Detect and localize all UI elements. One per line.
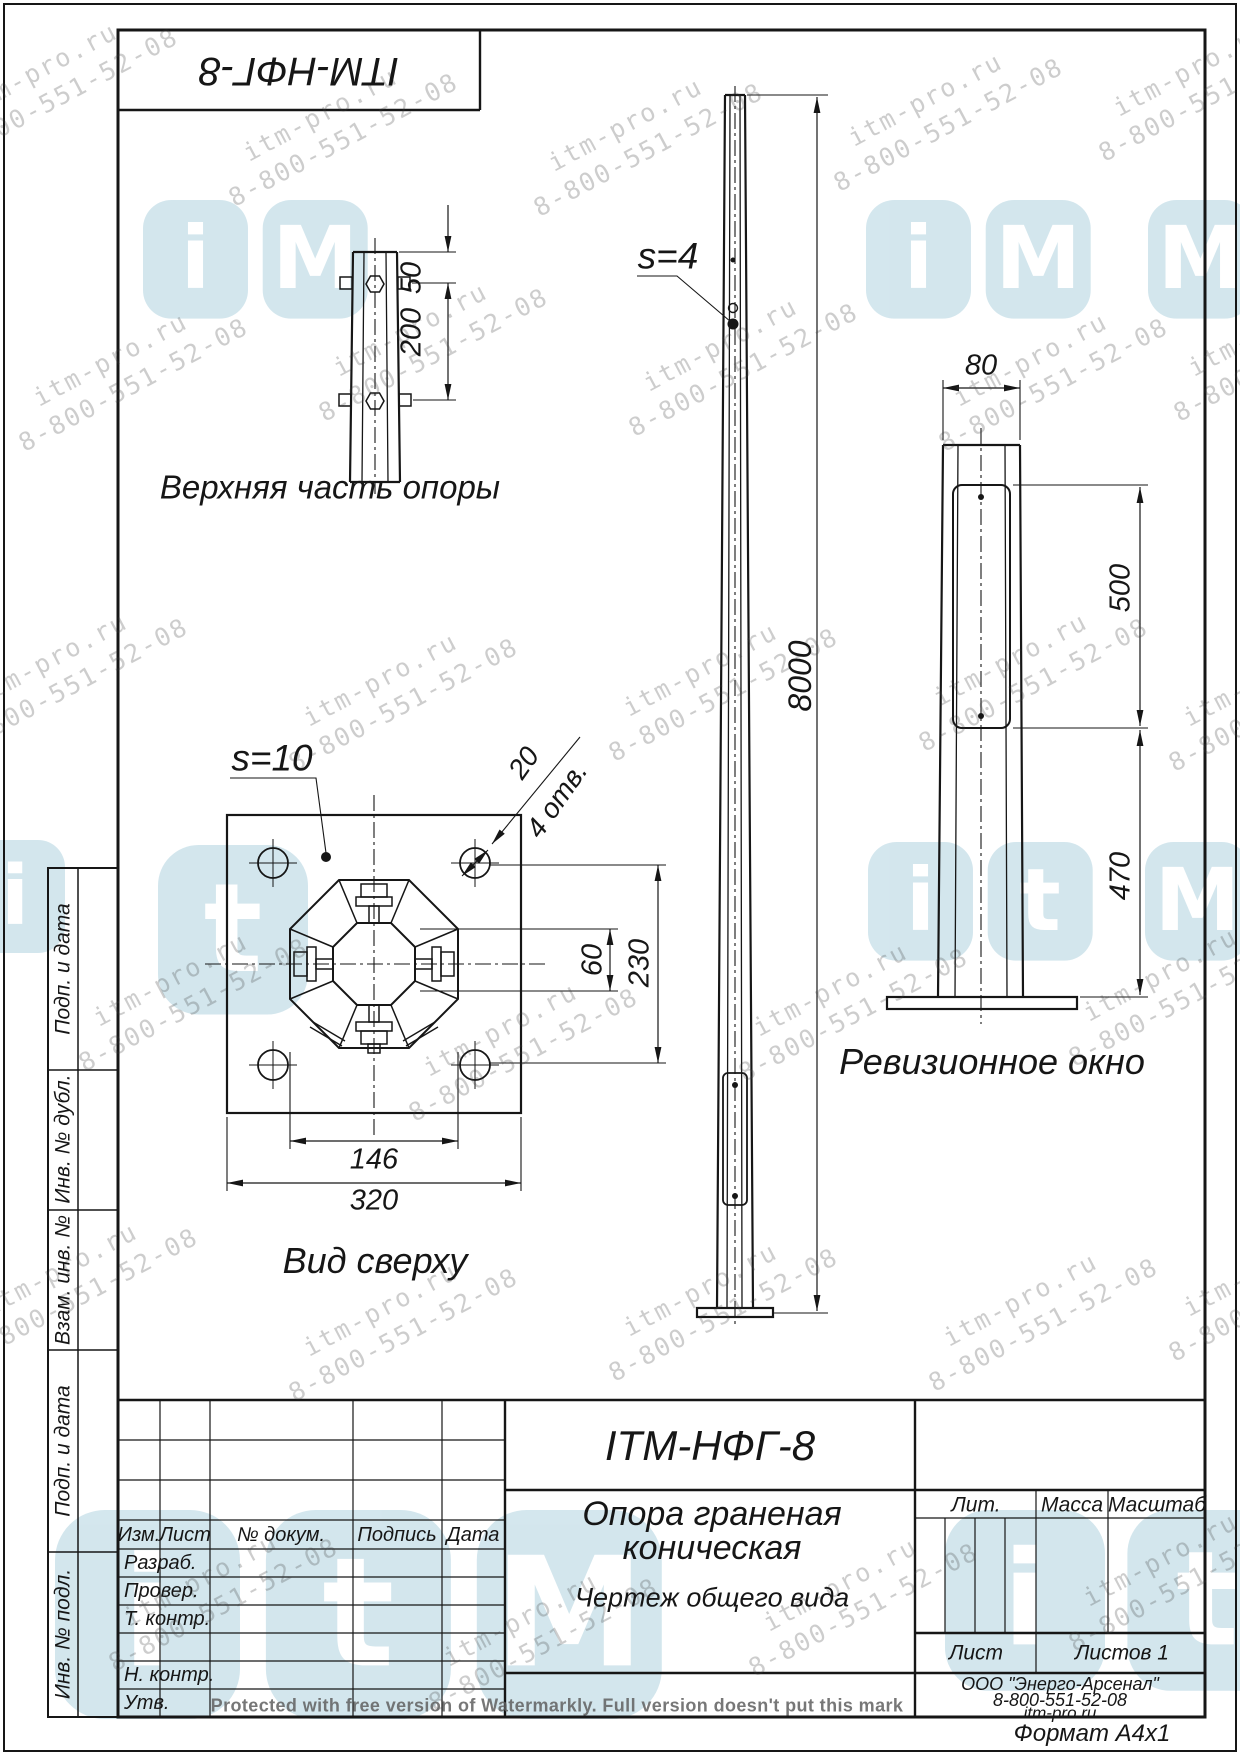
titleblock-row-tkontr: Т. контр. — [124, 1609, 210, 1629]
titleblock-scale-header: Масштаб — [1108, 1495, 1206, 1516]
titleblock-sheet-label: Лист — [949, 1643, 1003, 1664]
titleblock-row-nkontr: Н. контр. — [124, 1665, 214, 1685]
dim-230-label: 230 — [626, 939, 655, 987]
titleblock-title-line2: коническая — [623, 1531, 802, 1565]
titleblock-col-sign: Подпись — [357, 1525, 436, 1545]
view-label-plan: Вид сверху — [283, 1243, 468, 1279]
dim-500-label: 500 — [1107, 564, 1136, 612]
margin-label-podp-data-1: Подп. и дата — [53, 903, 74, 1034]
titleblock-designation: ITM-НФГ-8 — [605, 1425, 815, 1467]
corner-stamp-designation: ITM-НФГ-8 — [199, 51, 399, 91]
titleblock-sheets-label: Листов 1 — [1075, 1643, 1169, 1664]
hole-diameter-label: 20 — [504, 742, 545, 784]
titleblock-website: itm-pro.ru — [1024, 1705, 1097, 1722]
dim-200-label: 200 — [398, 308, 427, 356]
dim-320-label: 320 — [350, 1187, 398, 1216]
titleblock-lit-header: Лит. — [951, 1495, 1000, 1516]
titleblock-col-list: Лист — [159, 1525, 211, 1545]
dim-80-label: 80 — [965, 352, 997, 381]
titleblock-mass-header: Масса — [1041, 1495, 1103, 1516]
dim-470-label: 470 — [1107, 852, 1136, 900]
titleblock-col-date: Дата — [447, 1525, 500, 1545]
margin-label-podp-data-2: Подп. и дата — [53, 1385, 74, 1516]
titleblock-title-line1: Опора граненая — [582, 1497, 841, 1531]
margin-label-inv-dubl: Инв. № дубл. — [53, 1074, 74, 1203]
titleblock-row-razrab: Разраб. — [124, 1553, 196, 1573]
view-label-side: Ревизионное окно — [839, 1044, 1145, 1080]
titleblock-row-prover: Провер. — [124, 1581, 199, 1601]
view-label-top-part: Верхняя часть опоры — [160, 471, 500, 504]
margin-label-vzam-inv: Взам. инв. № — [53, 1215, 74, 1345]
dim-50-label: 50 — [398, 262, 427, 294]
titleblock-subtitle: Чертеж общего вида — [575, 1585, 849, 1612]
dim-8000-label: 8000 — [784, 640, 816, 711]
wall-thickness-callout-s4: s=4 — [638, 238, 699, 275]
format-note: Формат А4х1 — [1014, 1722, 1171, 1746]
dim-60-label: 60 — [579, 944, 608, 976]
wall-thickness-callout-s10: s=10 — [231, 740, 312, 777]
dim-146-label: 146 — [350, 1146, 398, 1175]
titleblock-col-doc: № докум. — [237, 1525, 325, 1545]
titleblock-row-utv: Утв. — [124, 1693, 169, 1713]
drawing-sheet: iMiMMititMitMit — [0, 0, 1240, 1755]
margin-label-inv-podl: Инв. № подл. — [53, 1569, 74, 1699]
titleblock-col-izm: Изм. — [118, 1525, 161, 1545]
watermarkly-protected-note: Protected with free version of Watermark… — [211, 1696, 904, 1717]
